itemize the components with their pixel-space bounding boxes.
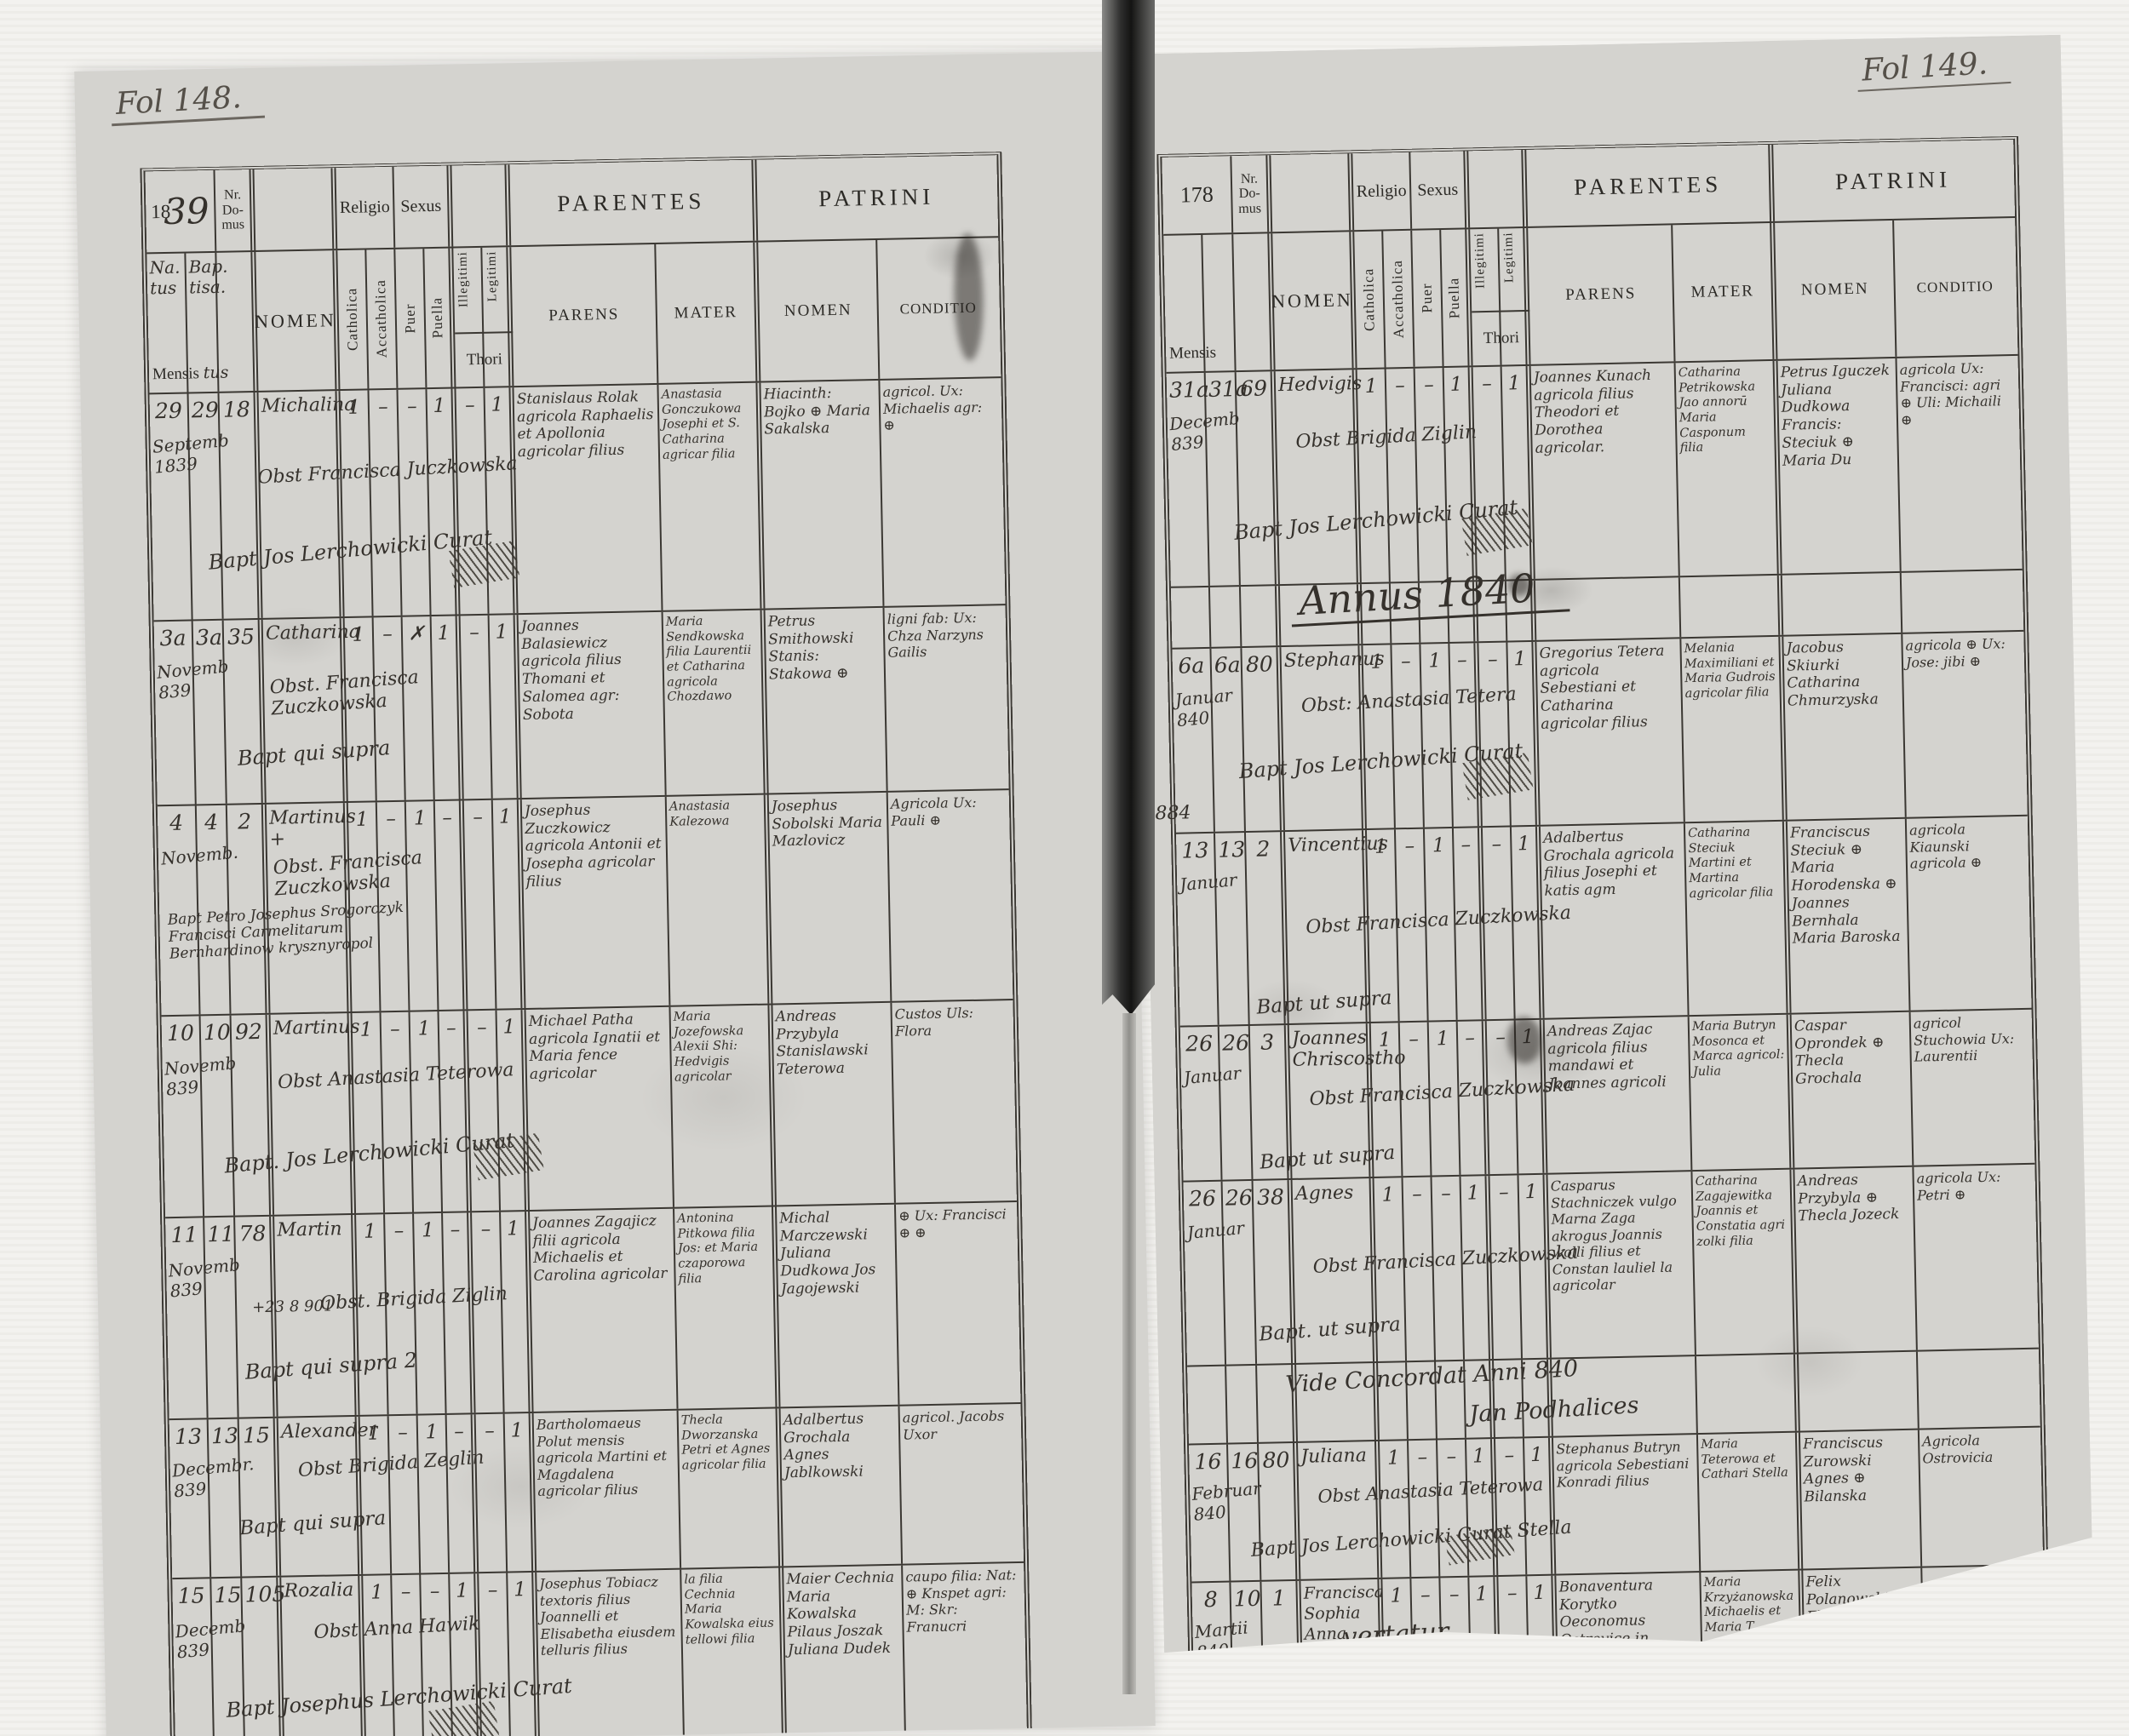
cell-catholica: 1 xyxy=(356,1214,389,1415)
blank-header xyxy=(254,168,337,250)
cell-baptisatus: 10 xyxy=(201,1016,236,1217)
puella-label: Puella xyxy=(428,297,446,339)
cell-illegitimi: – xyxy=(1478,643,1511,827)
cell-puella: – xyxy=(439,1011,473,1212)
cell-patrini: Franciscus Zurowski Agnes ⊕ Bilanska xyxy=(1800,1430,1922,1569)
cell-parens: Bonaventura Korytko Oeconomus Ostrovice … xyxy=(1556,1573,1704,1705)
cell-puer: 1 xyxy=(410,1011,444,1212)
cell-natus: 10 xyxy=(162,1016,205,1217)
cell-baptisatus: 29 xyxy=(189,393,224,620)
cell-conditio: Agricola Ux: Pauli ⊕ xyxy=(888,790,1012,1001)
cell-empty xyxy=(1680,576,1783,637)
legitimi-label: Legitimi xyxy=(485,250,500,301)
cell-nomen: Martinus xyxy=(271,1013,356,1215)
cell-parens: Joannes Zagajicz filii agricola Michaeli… xyxy=(530,1209,678,1412)
cell-mater: Melania Maximiliani et Maria Gudrois agr… xyxy=(1681,637,1787,822)
scanned-register-spread: Fol 148. 1839 Nr. Do- mus Religio Sexus … xyxy=(0,0,2129,1736)
catholica-label: Catholica xyxy=(1360,268,1379,332)
cell-mater: Anastasia Gonczukowa Josephi et S. Catha… xyxy=(658,383,765,610)
cell-domus: 35 xyxy=(224,620,267,804)
cell-acatholica: – xyxy=(1386,369,1420,582)
nomen-column-header: NOMEN xyxy=(1272,232,1357,370)
cell-baptisatus: 26 xyxy=(1219,1026,1254,1180)
month-note: Septemb 1839 xyxy=(152,429,240,478)
cell-mater: Catharina Steciuk Martini et Martina agr… xyxy=(1685,822,1792,1015)
register-row: 26 26 38 Agnes 1 – – 1 – 1 Casparus Stac… xyxy=(1184,1165,2039,1367)
cell-mater: Antonina Pitkowa filia Jos: et Maria cza… xyxy=(674,1206,780,1408)
cell-puer: 1 xyxy=(418,1415,450,1573)
patrini-nomen-header: NOMEN xyxy=(758,240,880,381)
register-row: 11 11 78 Martin 1 – 1 – – 1 Joannes Zaga… xyxy=(165,1202,1020,1420)
cell-legitimi: 1 xyxy=(505,1413,537,1572)
cell-patrini: Maier Cechnia Maria Kowalska Pilaus Josz… xyxy=(783,1566,906,1736)
mensis-label: Mensis tus xyxy=(152,363,263,384)
cell-baptisatus: 26 xyxy=(1223,1181,1257,1365)
cell-conditio: agricola ⊕ Ux: Jose: jibi ⊕ xyxy=(1902,632,2025,817)
cell-conditio: ligni fab: Ux: Chza Narzyns Gailis xyxy=(884,605,1007,791)
thori-blank-header xyxy=(451,164,511,246)
cell-mater: Maria Jozefowska Alexii Shi: Hedvigis ag… xyxy=(670,1005,776,1206)
illegitimi-label: Illegitimi xyxy=(456,251,471,307)
cell-catholica: 1 xyxy=(1382,1578,1415,1705)
mater-header: MATER xyxy=(1673,223,1777,361)
cell-domus: 18 xyxy=(220,392,263,619)
cell-natus: 26 xyxy=(1184,1182,1226,1366)
patrini-header: PATRINI xyxy=(1773,140,2013,221)
register-table-right: 178 Nr. Do- mus Religio Sexus PARENTES P… xyxy=(1156,136,2051,1705)
cell-acatholica: – xyxy=(392,1575,424,1736)
header-row-columns: NOMEN Catholica Accatholica Puer Puella … xyxy=(1163,218,2017,374)
illegitimi-label: Illegitimi xyxy=(1472,232,1488,289)
cell-legitimi: 1 xyxy=(1518,1175,1551,1359)
cell-conditio: agricola Kiaunski agricola ⊕ xyxy=(1907,816,2030,1011)
cell-parens: Casparus Stachniczek vulgo Marna Zaga ak… xyxy=(1547,1172,1696,1358)
month-note: Novemb 839 xyxy=(168,1253,256,1302)
vertatur-note: vertatur xyxy=(1342,1617,1449,1653)
cell-domus: 78 xyxy=(235,1217,278,1418)
religio-header: Religio xyxy=(336,167,395,249)
cell-natus: 13 xyxy=(1176,834,1219,1026)
mensis-label: Mensis xyxy=(1169,342,1280,364)
margin-note-884: 884 xyxy=(1155,802,1191,824)
cell-puella: 1 xyxy=(1469,1577,1501,1705)
puer-label: Puer xyxy=(1419,284,1437,314)
month-note: Martii 840 xyxy=(1194,1614,1283,1663)
cell-baptisatus: 13 xyxy=(1215,833,1250,1025)
cell-puella: – xyxy=(443,1212,476,1413)
patrini-nomen-header: NOMEN xyxy=(1775,221,1897,359)
cell-patrini: Josephus Sobolski Maria Mazlovicz xyxy=(769,793,892,1004)
cell-conditio: agricola Ux: Francisci: agri ⊕ Uli: Mich… xyxy=(1897,356,2020,571)
cell-acatholica: – xyxy=(369,390,402,616)
cell-conditio: ⊕ Ux: Francisci ⊕ ⊕ xyxy=(896,1202,1019,1405)
month-note: Decemb 839 xyxy=(1168,406,1257,455)
cell-puer: 1 xyxy=(414,1213,447,1414)
mensis-printed: Mensis xyxy=(152,364,199,383)
cell-patrini: Hiacinth: Bojko ⊕ Maria Sakalska xyxy=(760,381,884,609)
acatholica-header: Accatholica xyxy=(1383,231,1415,368)
religio-header: Religio xyxy=(1352,152,1412,230)
year-cell: 178 xyxy=(1162,156,1233,234)
cell-empty xyxy=(1799,1352,1920,1431)
cell-parens: Joannes Kunach agricola filius Theodori … xyxy=(1531,363,1680,579)
page-left: Fol 148. 1839 Nr. Do- mus Religio Sexus … xyxy=(74,51,1156,1736)
register-table-left: 1839 Nr. Do- mus Religio Sexus PARENTES … xyxy=(140,152,1031,1736)
month-note: Novemb 839 xyxy=(156,655,244,703)
conditio-header: CONDITIO xyxy=(1894,218,2016,357)
register-row: 4 4 2 Martinus + 1 – 1 – – 1 Josephus Zu… xyxy=(158,790,1013,1017)
patrini-header: PATRINI xyxy=(756,155,996,240)
cell-catholica: 1 xyxy=(340,390,373,616)
cell-domus: 69 xyxy=(1237,371,1280,585)
cell-mater: Maria Butryn Mosonca et Marca agricol: J… xyxy=(1690,1015,1795,1170)
cell-baptisatus: 3a xyxy=(193,621,227,805)
cell-natus: 31a xyxy=(1167,373,1210,587)
register-row: 3a 3a 35 Catharina 1 – ✗ 1 – 1 Joannes B… xyxy=(154,605,1009,806)
cell-mater: Maria Sendkowska filia Laurentii et Cath… xyxy=(663,610,769,795)
header-row-groups: 1839 Nr. Do- mus Religio Sexus PARENTES … xyxy=(146,155,999,254)
parens-header: PARENS xyxy=(511,244,658,386)
cell-parens: Michael Patha agricola Ignatii et Maria … xyxy=(525,1007,674,1210)
thori-label: Thori xyxy=(1472,310,1530,365)
cell-illegitimi: – xyxy=(468,1011,501,1212)
year-cell: 1839 xyxy=(146,170,217,253)
cell-legitimi: 1 xyxy=(490,615,522,799)
blank-header xyxy=(1271,153,1354,232)
cell-legitimi: 1 xyxy=(1524,1438,1556,1575)
cell-patrini: Michal Marczewski Juliana Dudkowa Jos Ja… xyxy=(777,1205,899,1407)
cell-conditio xyxy=(1922,1566,2045,1706)
cell-parens: Stanislaus Rolak agricola Raphaelis et A… xyxy=(514,385,663,613)
puella-header: Puella xyxy=(424,249,456,388)
sexus-header: Sexus xyxy=(1410,151,1470,228)
folio-number-right: Fol 149. xyxy=(1856,45,2011,92)
thori-blank-header xyxy=(1468,150,1528,227)
cell-empty xyxy=(1187,1366,1228,1444)
nr-domus-header: Nr. Do- mus xyxy=(215,169,255,251)
cell-conditio: Custos Uls: Flora xyxy=(892,1000,1014,1203)
cell-parens: Bartholomaeus Polut mensis agricola Mart… xyxy=(534,1411,682,1571)
cell-illegitimi: – xyxy=(476,1414,508,1573)
cell-nomen: Michalina xyxy=(259,391,345,618)
register-row: 13 13 2 Vincentius 1 – 1 – – 1 Adalbertu… xyxy=(1176,816,2032,1028)
cell-nomen: Francisca Sophia Anna (trinomim) + xyxy=(1300,1579,1386,1705)
cell-mater: Maria Krzyżanowska Michaelis et Maria T xyxy=(1701,1571,1806,1706)
cell-puer: – xyxy=(1440,1578,1472,1706)
header-row-columns: Na. tus Bap. tisa. NOMEN Catholica Accat… xyxy=(146,238,1001,394)
cell-acatholica: – xyxy=(389,1416,422,1574)
cell-mater: Catharina Zagajewitka Joannis et Constat… xyxy=(1692,1170,1798,1355)
cell-legitimi: 1 xyxy=(1507,642,1540,826)
cell-nomen: Juliana xyxy=(1298,1441,1382,1579)
cell-illegitimi: – xyxy=(461,616,493,799)
cell-legitimi: 1 xyxy=(496,1010,530,1211)
cell-puer: – xyxy=(1415,368,1449,582)
nomen-column-header: NOMEN xyxy=(255,250,340,391)
parentes-header: PARENTES xyxy=(1526,145,1775,226)
nr-domus-header: Nr. Do- mus xyxy=(1231,155,1272,232)
acatholica-label: Accatholica xyxy=(1389,260,1408,339)
month-note: Decemb 839 xyxy=(175,1614,263,1663)
month-note: Januar 840 xyxy=(1174,682,1263,730)
mensis-handwritten: tus xyxy=(204,364,229,383)
cell-legitimi: 1 xyxy=(1527,1576,1559,1706)
cell-empty xyxy=(1782,573,1902,635)
cell-parens: Josephus Tobiacz textoris filius Joannel… xyxy=(537,1570,685,1736)
cell-empty xyxy=(1241,586,1281,646)
register-row: 31a 31a 69 Hedvigis 1 – – 1 – 1 Joannes … xyxy=(1167,356,2023,588)
mater-header: MATER xyxy=(656,243,760,383)
cell-patrini: Franciscus Steciuk ⊕ Maria Horodenska ⊕ … xyxy=(1788,819,1911,1013)
cell-domus: 15 xyxy=(239,1418,282,1577)
cell-conditio: agricol. Ux: Michaelis agr: ⊕ xyxy=(880,378,1003,606)
cell-conditio: agricol. Jacobs Uxor xyxy=(900,1404,1023,1564)
cell-mater: Catharina Petrikowska Jao annorū Maria C… xyxy=(1676,361,1782,576)
cell-catholica: 1 xyxy=(353,1012,386,1213)
register-row: 10 10 92 Martinus 1 – 1 – – 1 Michael Pa… xyxy=(162,1000,1017,1218)
cell-puella: – xyxy=(1449,643,1482,827)
cell-acatholica: – xyxy=(1392,645,1424,828)
cell-domus: 92 xyxy=(232,1015,275,1216)
catholica-header: Catholica xyxy=(1354,231,1386,368)
month-note: Februar 840 xyxy=(1191,1476,1279,1525)
catholica-label: Catholica xyxy=(343,288,361,352)
parentes-header: PARENTES xyxy=(509,160,758,246)
cell-baptisatus: 31a xyxy=(1206,372,1241,586)
cell-parens: Joannes Balasiewicz agricola filius Thom… xyxy=(519,612,667,798)
thori-label: Thori xyxy=(455,331,514,387)
binding-shadow-light xyxy=(1122,1013,1136,1694)
parens-header: PARENS xyxy=(1528,225,1675,364)
cell-patrini: Caspar Oprondek ⊕ Thecla Grochala xyxy=(1792,1012,1914,1168)
cell-conditio: Agricola Ostrovicia xyxy=(1920,1428,2041,1567)
legitimi-label: Legitimi xyxy=(1501,232,1517,283)
cell-legitimi: 1 xyxy=(493,799,526,1009)
puer-header: Puer xyxy=(1412,230,1443,367)
cell-conditio: agricola Ux: Petri ⊕ xyxy=(1914,1165,2036,1350)
cell-nomen: Stephanus xyxy=(1281,645,1366,830)
cell-empty xyxy=(1696,1355,1800,1433)
cell-mater: Thecla Dworzanska Petri et Agnes agricol… xyxy=(679,1408,784,1567)
cell-legitimi: 1 xyxy=(501,1212,534,1412)
cell-illegitimi: – xyxy=(464,800,497,1010)
cell-empty xyxy=(1226,1366,1259,1443)
cell-empty xyxy=(1918,1349,2039,1429)
cell-conditio: agricol Stuchowia Ux: Laurentii xyxy=(1911,1010,2034,1166)
binding-shadow-dark xyxy=(1102,0,1155,1015)
cell-empty xyxy=(1171,587,1211,648)
cell-puer: 1 xyxy=(1420,644,1453,828)
cell-natus: 11 xyxy=(165,1217,209,1418)
cell-mater: la filia Cechnia Maria Kowalska eius tel… xyxy=(681,1567,787,1736)
puer-header: Puer xyxy=(395,249,427,388)
sexus-header: Sexus xyxy=(393,166,453,248)
cell-empty xyxy=(1210,587,1242,647)
cell-empty xyxy=(1902,570,2022,633)
cell-parens: Gregorius Tetera agricola Sebestiani et … xyxy=(1536,639,1684,825)
puella-header: Puella xyxy=(1441,229,1472,366)
cell-catholica: 1 xyxy=(1363,645,1395,828)
cell-acatholica: – xyxy=(1411,1578,1443,1705)
register-row: 6a 6a 80 Stephanus 1 – 1 – – 1 Gregorius… xyxy=(1172,632,2027,834)
cell-puella: – xyxy=(447,1414,479,1573)
cell-natus: 29 xyxy=(150,393,193,620)
puer-label: Puer xyxy=(402,303,420,334)
cell-catholica: 1 xyxy=(1357,369,1391,582)
month-note: Novemb 839 xyxy=(164,1051,252,1100)
register-row: 16 16 80 Juliana 1 – – 1 – 1 Stephanus B… xyxy=(1189,1428,2043,1584)
folio-number-left: Fol 148. xyxy=(110,79,265,127)
register-row: 29 29 18 Michalina 1 – – 1 – 1 Stanislau… xyxy=(150,378,1006,622)
cell-acatholica: – xyxy=(1409,1440,1440,1577)
cell-mater: Maria Teterowa et Cathari Stella xyxy=(1698,1433,1803,1571)
cell-patrini: Felix Polanowski Flamawska Lazezik Wierb… xyxy=(1803,1568,1925,1706)
cell-patrini: Adalbertus Grochala Agnes Jablkowski xyxy=(781,1407,904,1567)
acatholica-label: Accatholica xyxy=(372,279,391,358)
cell-natus: 3a xyxy=(154,621,197,805)
cell-parens: Stephanus Butryn agricola Sebestiani Kon… xyxy=(1553,1435,1701,1574)
cell-baptisatus: 11 xyxy=(204,1217,239,1418)
cell-patrini: Petrus Smithowski Stanis: Stakowa ⊕ xyxy=(766,608,888,794)
register-row: 8 10 1 Francisca Sophia Anna (trinomim) … xyxy=(1191,1566,2046,1706)
cell-parens: Josephus Zuczkowicz agricola Antonii et … xyxy=(522,797,671,1008)
cell-illegitimi: – xyxy=(1498,1576,1530,1705)
cell-illegitimi: – xyxy=(472,1212,505,1413)
cell-puer: – xyxy=(398,389,431,616)
cell-acatholica: – xyxy=(385,1214,418,1415)
cell-domus: 80 xyxy=(1242,647,1284,831)
cell-catholica: 1 xyxy=(360,1416,393,1574)
register-row: 26 26 3 Joannes Chriscostho 1 – 1 – – 1 … xyxy=(1180,1010,2035,1183)
cell-catholica: 1 xyxy=(1380,1441,1411,1578)
year-handwritten: 39 xyxy=(164,195,209,228)
cell-patrini: Andreas Przybyla ⊕ Thecla Jozeck xyxy=(1794,1167,1917,1353)
cell-conditio: caupo filia: Nat: ⊕ Knspet agri: M: Skr:… xyxy=(903,1563,1025,1736)
cell-mater: Anastasia Kalezowa xyxy=(667,795,773,1006)
cell-acatholica: – xyxy=(382,1012,415,1213)
cell-patrini: Andreas Przybyla Stanislawski Teterowa xyxy=(772,1003,895,1206)
catholica-header: Catholica xyxy=(337,249,369,389)
register-row: 13 13 15 Alexander 1 – 1 – – 1 Bartholom… xyxy=(169,1404,1024,1579)
month-note: Decembr. 839 xyxy=(171,1453,260,1502)
register-row: 15 15 105 Rozalia 1 – – 1 – 1 Josephus T… xyxy=(172,1563,1027,1736)
cell-patrini: Jacobus Skiurki Catharina Chmurzyska xyxy=(1783,634,1906,820)
cell-natus: 26 xyxy=(1180,1027,1223,1181)
cell-nomen: Alexander xyxy=(278,1417,364,1576)
cell-nomen: Hedvigis xyxy=(1276,370,1362,584)
acatholica-header: Accatholica xyxy=(366,249,398,389)
cell-patrini: Petrus Iguczek Juliana Dudkowa Francis: … xyxy=(1778,358,1902,574)
cell-legitimi: 1 xyxy=(508,1573,540,1736)
cell-baptisatus: 6a xyxy=(1211,648,1245,832)
puella-label: Puella xyxy=(1445,277,1463,318)
page-right: Fol 149. 178 Nr. Do- mus Religio Sexus P… xyxy=(1131,35,2095,1705)
